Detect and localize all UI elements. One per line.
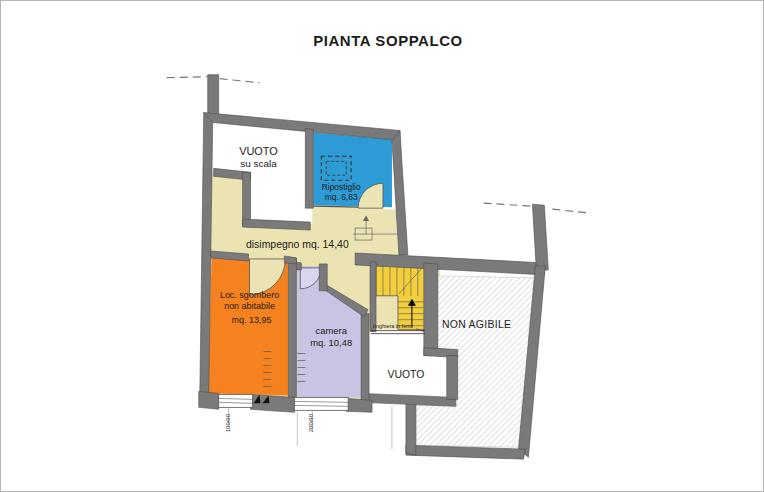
window-left-dimension: 100/90 [225,413,231,432]
plan-title: PIANTA SOPPALCO [313,32,463,49]
room-vuoto [368,330,426,398]
floor-plan-drawing: PIANTA SOPPALCO [1,1,763,491]
label-vuoto-su-scala: VUOTO [239,145,278,157]
window-right [294,397,348,429]
label-ripostiglio-area: mq. 6,83 [325,192,358,202]
label-camera-area: mq. 10,48 [310,337,352,348]
label-sgombero-area: mq. 13,95 [232,315,272,325]
window-right-dimension: 200/90 [308,413,314,432]
label-ringhiera: ringhiera in ferro [373,323,413,329]
label-sgombero: Loc. sgombero [220,290,279,300]
partition-line [313,206,358,207]
label-camera: camera [315,325,347,336]
label-non-agibile: NON AGIBILE [442,319,511,330]
label-sgombero-2: non abitabile [224,301,275,311]
label-vuoto: VUOTO [387,369,424,380]
floor-plan-sheet: PIANTA SOPPALCO [0,0,764,492]
label-vuoto-su-scala-2: su scala [240,158,277,169]
label-disimpegno: disimpegno mq. 14,40 [246,239,349,250]
label-ripostiglio: Ripostiglio [322,182,361,192]
